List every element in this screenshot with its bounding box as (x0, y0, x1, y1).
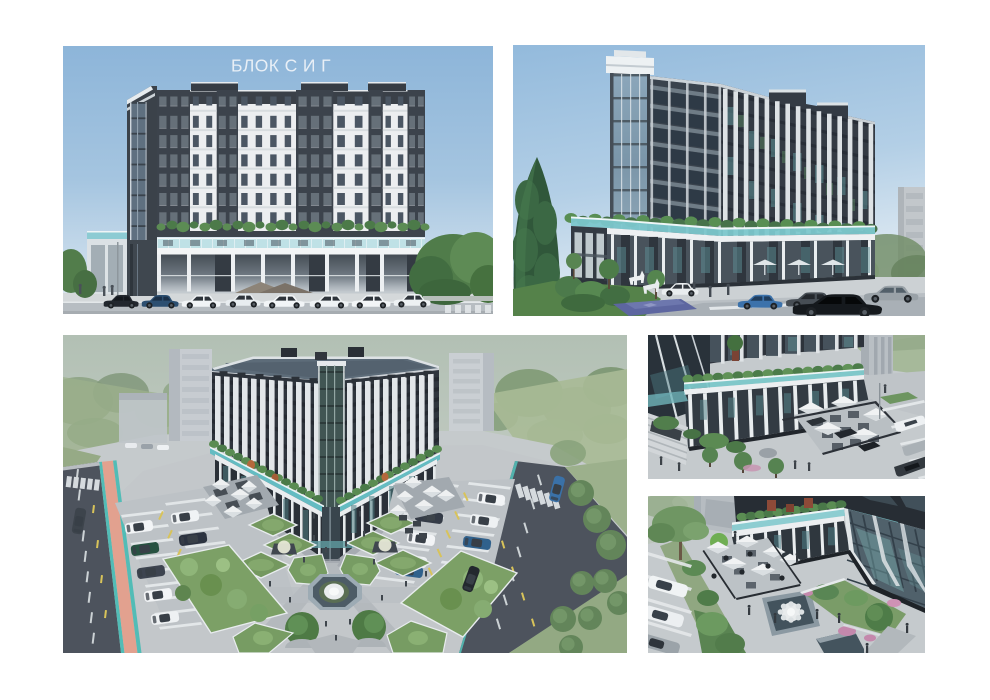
svg-text:БЛОК С И Г: БЛОК С И Г (231, 56, 331, 76)
